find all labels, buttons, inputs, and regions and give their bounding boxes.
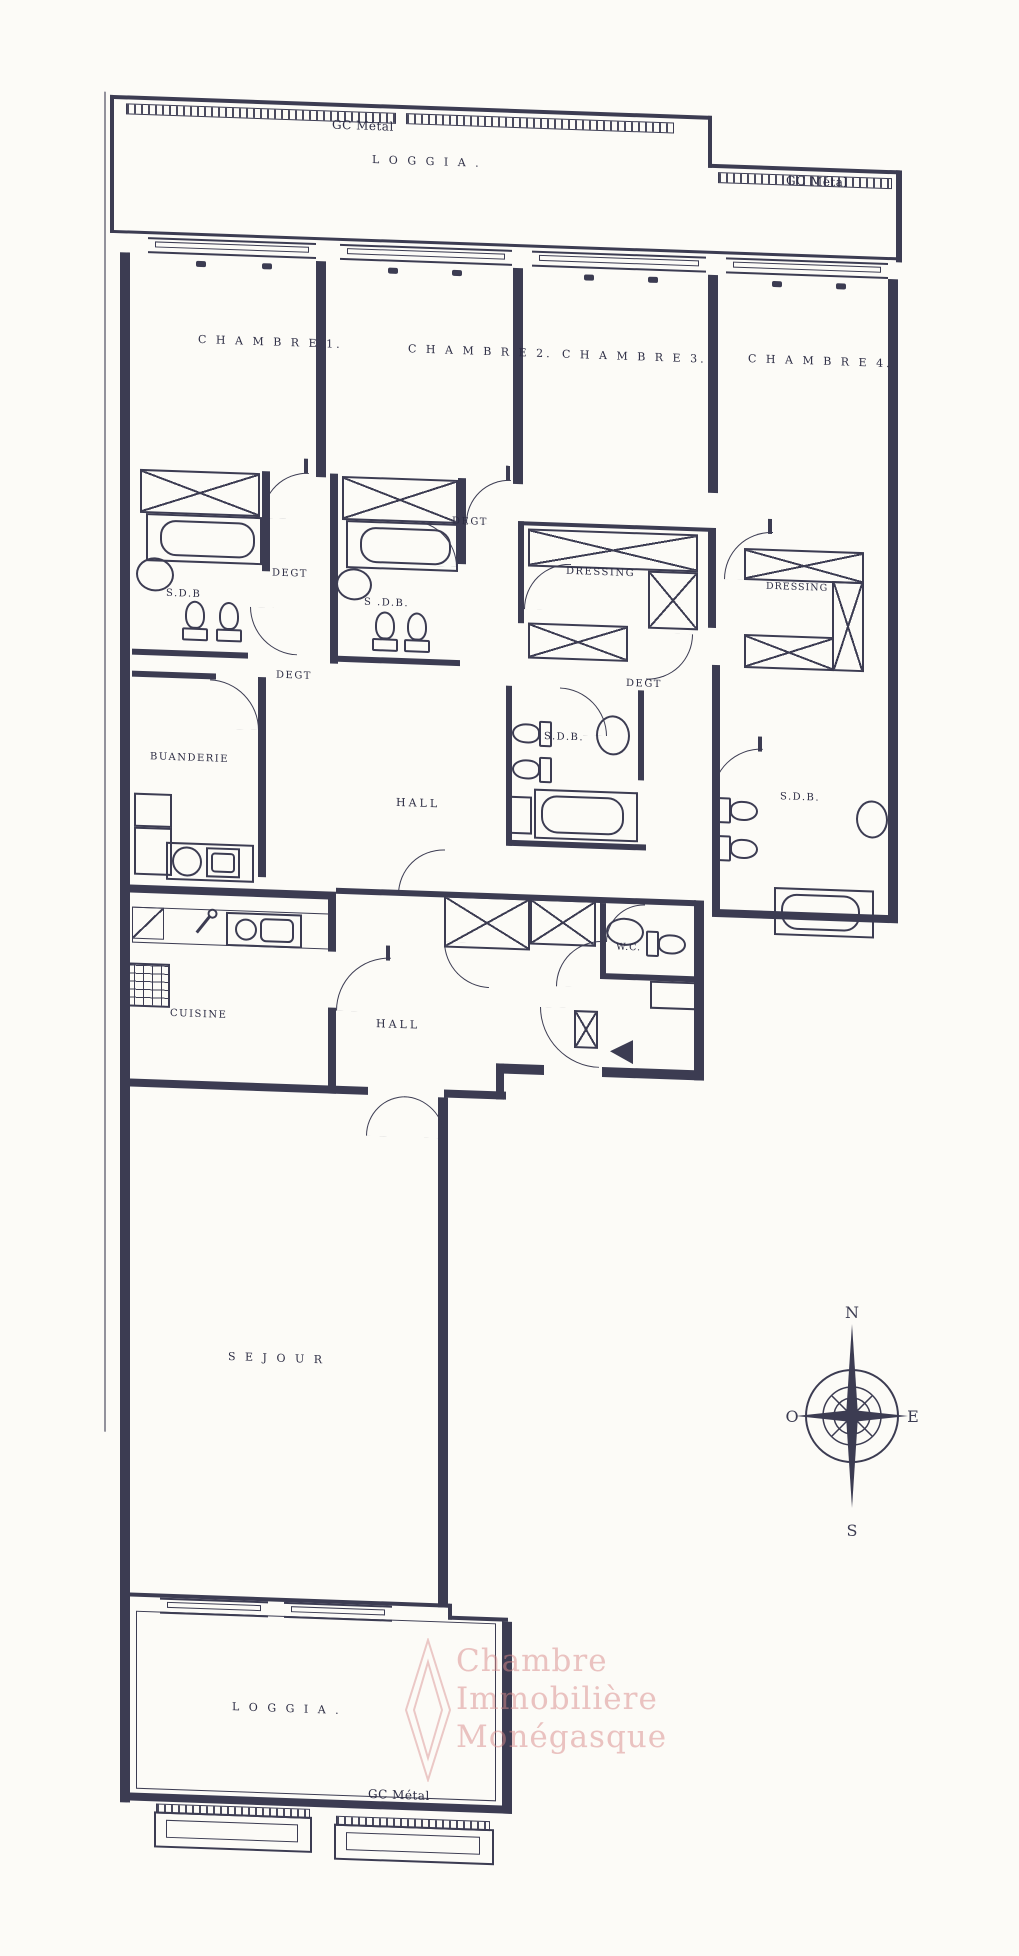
- wall: [896, 170, 902, 262]
- wall: [258, 677, 266, 877]
- closet: [530, 899, 596, 947]
- watermark-line-2: Immobilière: [456, 1680, 667, 1718]
- door-leaf: [304, 459, 308, 474]
- window: [726, 257, 888, 279]
- wall: [132, 671, 216, 680]
- closet: [140, 469, 260, 517]
- wall: [708, 275, 718, 493]
- door-arc: [210, 679, 259, 730]
- door-leaf: [386, 945, 390, 960]
- label-dressing-3: DRESSING: [566, 566, 635, 579]
- door-leaf: [768, 519, 772, 534]
- window-handle: [196, 261, 206, 267]
- compass-n: N: [845, 1303, 859, 1322]
- label-buanderie: BUANDERIE: [150, 751, 229, 765]
- washing-machine: [172, 846, 202, 877]
- label-sejour: S E J O U R: [228, 1350, 325, 1366]
- toilet: [182, 600, 208, 643]
- door-arc: [606, 903, 645, 943]
- door-arc: [444, 942, 489, 989]
- label-cuisine: CUISINE: [170, 1008, 227, 1021]
- door-arc: [724, 530, 773, 581]
- window: [340, 244, 512, 266]
- cabinet: [650, 981, 698, 1011]
- laundry-sink: [206, 847, 240, 878]
- wall: [328, 895, 336, 951]
- wall: [602, 1067, 702, 1080]
- wall: [330, 474, 338, 664]
- bathtub: [534, 789, 638, 843]
- wall: [316, 261, 326, 477]
- compass-e: E: [907, 1407, 919, 1426]
- label-degt-b: DEGT: [276, 670, 312, 682]
- door-leaf: [506, 466, 510, 481]
- wall: [336, 1086, 368, 1095]
- toilet: [216, 602, 242, 645]
- door-arc: [524, 562, 571, 611]
- compass-s: S: [847, 1521, 858, 1540]
- window-handle: [452, 270, 462, 276]
- wall: [513, 268, 523, 484]
- window-handle: [836, 283, 846, 289]
- label-chambre-2: C H A M B R E 2.: [408, 342, 553, 360]
- watermark-line-3: Monégasque: [456, 1718, 667, 1756]
- door-arc: [646, 633, 693, 682]
- wall: [888, 279, 898, 921]
- window: [532, 251, 706, 273]
- wall: [262, 471, 270, 571]
- label-hall-2: HALL: [376, 1017, 420, 1032]
- wall: [438, 1097, 448, 1607]
- bathtub: [774, 887, 874, 938]
- label-degt-a: DEGT: [272, 567, 308, 579]
- scanned-floor-plan-page: { "colors": { "ink": "#3c3c52", "paper":…: [0, 0, 1019, 1920]
- window-handle: [262, 263, 272, 269]
- cooktop: [124, 962, 170, 1008]
- wall: [104, 92, 106, 1432]
- toilet: [644, 930, 686, 957]
- wall: [120, 1078, 336, 1094]
- wall: [708, 528, 716, 628]
- wall: [328, 1007, 336, 1093]
- closet: [648, 571, 698, 631]
- kitchen-sink: [226, 912, 302, 949]
- compass-rose: N S O E: [782, 1300, 922, 1544]
- label-chambre-3: C H A M B R E 3.: [562, 348, 707, 366]
- wall: [708, 116, 712, 168]
- drainer: [132, 907, 164, 940]
- label-gc-metal-top: GC Métal: [332, 118, 394, 134]
- window: [148, 237, 316, 259]
- agency-watermark-text: Chambre Immobilière Monégasque: [456, 1642, 667, 1756]
- toilet: [372, 611, 398, 654]
- toilet: [404, 612, 430, 655]
- label-sdb-4: S.D.B.: [780, 791, 820, 803]
- label-chambre-4: C H A M B R E 4.: [748, 352, 893, 370]
- door-arc: [336, 956, 391, 1013]
- compass-o: O: [785, 1407, 798, 1426]
- window-handle: [648, 277, 658, 283]
- bidet: [510, 796, 532, 835]
- door-leaf: [758, 736, 762, 751]
- wall: [132, 649, 248, 659]
- washbasin: [856, 800, 888, 839]
- wall: [338, 656, 460, 666]
- door-arc: [466, 478, 511, 525]
- label-sdb-1: S.D.B: [166, 588, 201, 600]
- agency-logo-watermark: [404, 1638, 452, 1786]
- wall: [120, 252, 130, 1802]
- toilet: [716, 797, 758, 824]
- label-gc-metal-bottom: GC Métal: [368, 1787, 430, 1803]
- wall: [110, 95, 114, 233]
- window-handle: [388, 268, 398, 274]
- wall: [444, 1090, 506, 1100]
- toilet: [512, 756, 554, 783]
- door-arc: [398, 848, 445, 897]
- label-loggia-top: L O G G I A .: [372, 153, 482, 170]
- door-arc: [366, 1095, 407, 1137]
- cabinet: [134, 793, 172, 828]
- window-handle: [772, 281, 782, 287]
- toilet: [716, 835, 758, 862]
- closet: [832, 581, 864, 672]
- wall: [448, 1616, 508, 1622]
- door-arc: [556, 939, 603, 988]
- label-gc-metal-right: GC Métal: [786, 173, 848, 189]
- window-handle: [584, 274, 594, 280]
- closet: [528, 622, 628, 661]
- wall: [638, 690, 644, 780]
- door-arc: [560, 688, 607, 737]
- washbasin: [136, 557, 174, 592]
- label-dressing-4: DRESSING: [766, 581, 828, 594]
- door-arc: [250, 607, 297, 656]
- closet: [744, 634, 834, 671]
- watermark-line-1: Chambre: [456, 1642, 667, 1680]
- entrance-arrow: [610, 1039, 633, 1064]
- wall: [120, 884, 336, 900]
- label-hall-1: HALL: [396, 796, 440, 811]
- label-sdb-2: S .D.B.: [364, 597, 409, 610]
- label-degt-d: DEGT: [626, 678, 662, 690]
- bathtub: [146, 513, 262, 565]
- closet: [342, 476, 458, 524]
- door-arc: [540, 1007, 599, 1068]
